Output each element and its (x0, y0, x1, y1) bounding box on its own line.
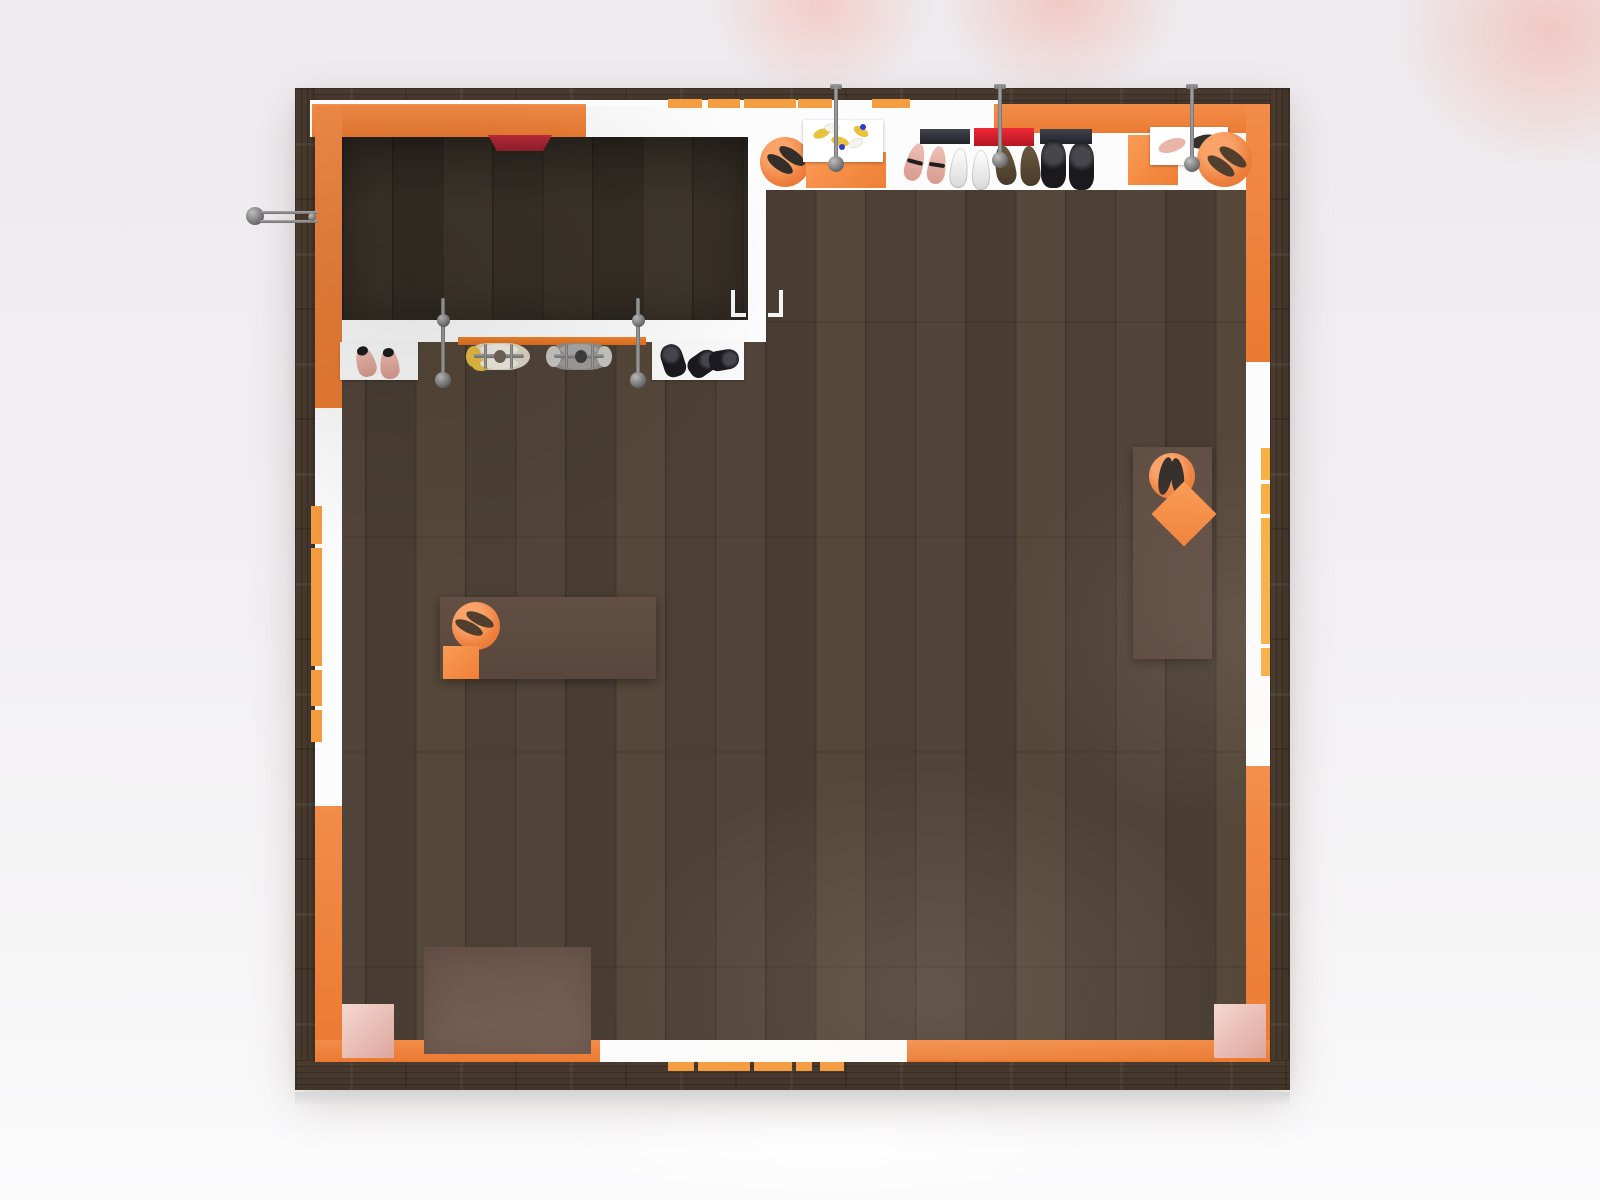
pole-ball (437, 314, 450, 327)
black-boot (1069, 142, 1094, 190)
chair-frame (565, 344, 568, 369)
brown-boot (1019, 145, 1042, 186)
chair-seat (494, 350, 506, 363)
chair-frame (510, 344, 513, 369)
pole-rod (834, 87, 838, 163)
armchair-orange[interactable] (1197, 132, 1252, 187)
black-boot (657, 341, 688, 379)
bottom-wall-shelf-2[interactable] (698, 1062, 750, 1071)
bottom-wall-shelf-4[interactable] (796, 1062, 812, 1071)
left-wall-shelf-2[interactable] (311, 548, 322, 666)
lounge-chair-cream[interactable] (466, 343, 530, 370)
right-wall-shelf-4[interactable] (1261, 648, 1270, 676)
pink-flat-shoe (378, 347, 400, 380)
ambient-glow-top-right (1330, 0, 1600, 230)
pink-heel (925, 145, 948, 185)
exterior-light-strip (295, 1092, 1290, 1106)
left-wall-orange-bottom (315, 806, 342, 1060)
top-wall-shelf-strip-1[interactable] (668, 99, 702, 108)
entry-awning[interactable] (488, 135, 552, 151)
top-wall-shelf-strip-3[interactable] (744, 99, 796, 108)
pole-ball (435, 372, 451, 388)
chair-frame (484, 344, 487, 369)
top-wall-shelf-strip-5[interactable] (872, 99, 910, 108)
fitting-panel-left[interactable] (342, 1004, 394, 1058)
pole-rod (1190, 87, 1194, 163)
pole-ball (828, 156, 844, 172)
entrance-door-handle[interactable] (246, 203, 318, 231)
bottom-wall-shelf-1[interactable] (668, 1062, 694, 1071)
window-lamp-pole[interactable] (827, 84, 845, 176)
pink-heel (901, 141, 928, 182)
heels-pink[interactable] (903, 141, 949, 187)
pole-ball (630, 372, 646, 388)
right-wall-shelf-3[interactable] (1261, 518, 1270, 644)
lounge-chair-gray[interactable] (546, 343, 612, 370)
wall-hook-right[interactable] (768, 290, 783, 317)
display-table-long[interactable] (440, 597, 656, 679)
display-platform-right[interactable] (652, 342, 744, 380)
brand-circle (452, 602, 500, 650)
left-wall-shelf-1[interactable] (311, 506, 322, 544)
rack-pole[interactable] (429, 298, 447, 394)
white-heel (972, 150, 990, 190)
boots-black[interactable] (1039, 139, 1097, 191)
left-wall-shelf-4[interactable] (311, 710, 322, 742)
accessory (860, 124, 866, 130)
bottom-wall-shelf-5[interactable] (820, 1062, 844, 1071)
black-boot (1041, 140, 1066, 188)
window-room-floor (342, 137, 748, 322)
display-table-tall[interactable] (1133, 447, 1212, 659)
store-floor-plan-render (0, 0, 1600, 1200)
white-heel (948, 147, 969, 188)
window-lamp-pole[interactable] (1183, 84, 1201, 176)
wall-hook-left[interactable] (731, 290, 746, 317)
handle-hinge (308, 213, 316, 221)
wall-frame-bottom (295, 1060, 1290, 1090)
chair-seat (575, 350, 587, 363)
left-wall-orange-top (315, 104, 342, 408)
left-wall-shelf-3[interactable] (311, 670, 322, 706)
pole-ball (632, 314, 645, 327)
bottom-wall-white (600, 1040, 907, 1062)
area-rug[interactable] (424, 947, 591, 1054)
window-room-top-wall (312, 104, 586, 137)
pink-flat-shoe (352, 344, 379, 379)
right-wall-orange-top (1246, 104, 1270, 362)
accessory (848, 136, 864, 149)
top-wall-shelf-strip-2[interactable] (708, 99, 740, 108)
pole-ball (992, 152, 1008, 168)
display-platform-left[interactable] (340, 342, 418, 380)
window-lamp-pole[interactable] (991, 84, 1009, 172)
right-wall-shelf-1[interactable] (1261, 448, 1270, 480)
pole-rod (998, 87, 1002, 159)
rack-pole[interactable] (626, 298, 644, 394)
fitting-panel-right[interactable] (1214, 1004, 1266, 1058)
right-wall-shelf-2[interactable] (1261, 484, 1270, 514)
wall-frame-right (1270, 88, 1290, 1090)
chair-frame (591, 344, 594, 369)
heels-white[interactable] (947, 145, 993, 191)
bottom-wall-shelf-3[interactable] (754, 1062, 792, 1071)
brand-square (443, 646, 479, 679)
black-boot (707, 348, 740, 373)
pole-ball (1184, 156, 1200, 172)
